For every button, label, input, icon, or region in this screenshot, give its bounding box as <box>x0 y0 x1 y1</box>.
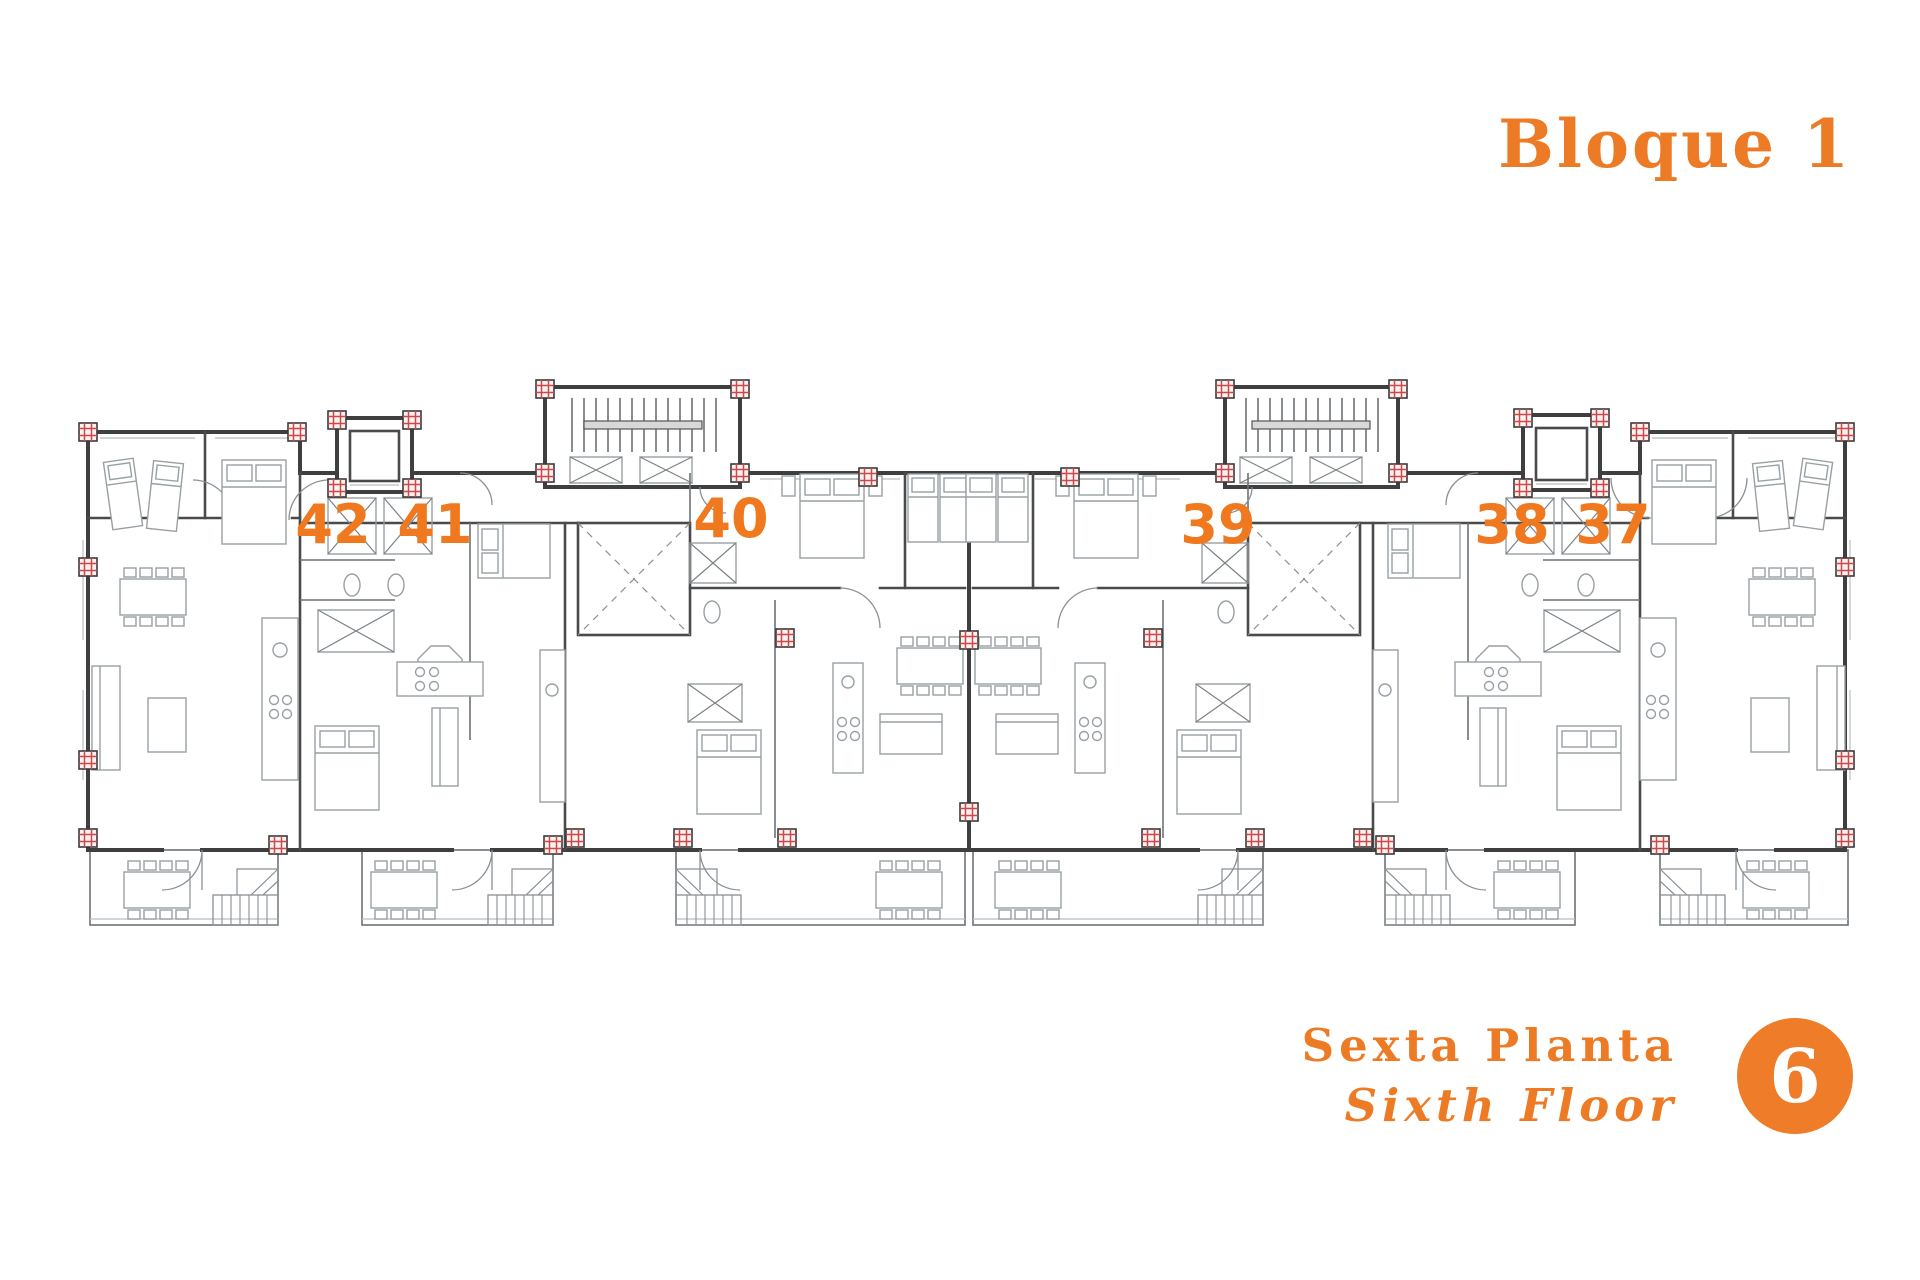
elevator-icon <box>337 418 412 492</box>
unit-number-40: 40 <box>693 487 768 550</box>
floor-name-english: Sixth Floor <box>1345 1079 1678 1132</box>
floor-badge-number: 6 <box>1769 1034 1821 1120</box>
unit-number-39: 39 <box>1180 493 1255 556</box>
staircase-icon <box>1225 387 1398 487</box>
floor-name-spanish: Sexta Planta <box>1302 1019 1678 1072</box>
floor-badge: 6 <box>1737 1018 1853 1134</box>
floor-plan-drawing: Bloque 1 42 41 40 39 38 37 Sexta Planta … <box>0 0 1920 1280</box>
floor-caption: Sexta Planta Sixth Floor <box>1302 1019 1678 1132</box>
unit-number-42: 42 <box>295 493 370 556</box>
terraces <box>90 850 1848 925</box>
terrace-tables <box>124 861 1809 919</box>
elevator-icon <box>1523 415 1600 490</box>
unit-number-41: 41 <box>397 493 472 556</box>
block-title: Bloque 1 <box>1498 105 1852 183</box>
unit-number-38: 38 <box>1474 493 1549 556</box>
floor-plan-page: Bloque 1 42 41 40 39 38 37 Sexta Planta … <box>0 0 1920 1280</box>
unit-number-37: 37 <box>1575 493 1650 556</box>
staircase-icon <box>545 387 740 487</box>
